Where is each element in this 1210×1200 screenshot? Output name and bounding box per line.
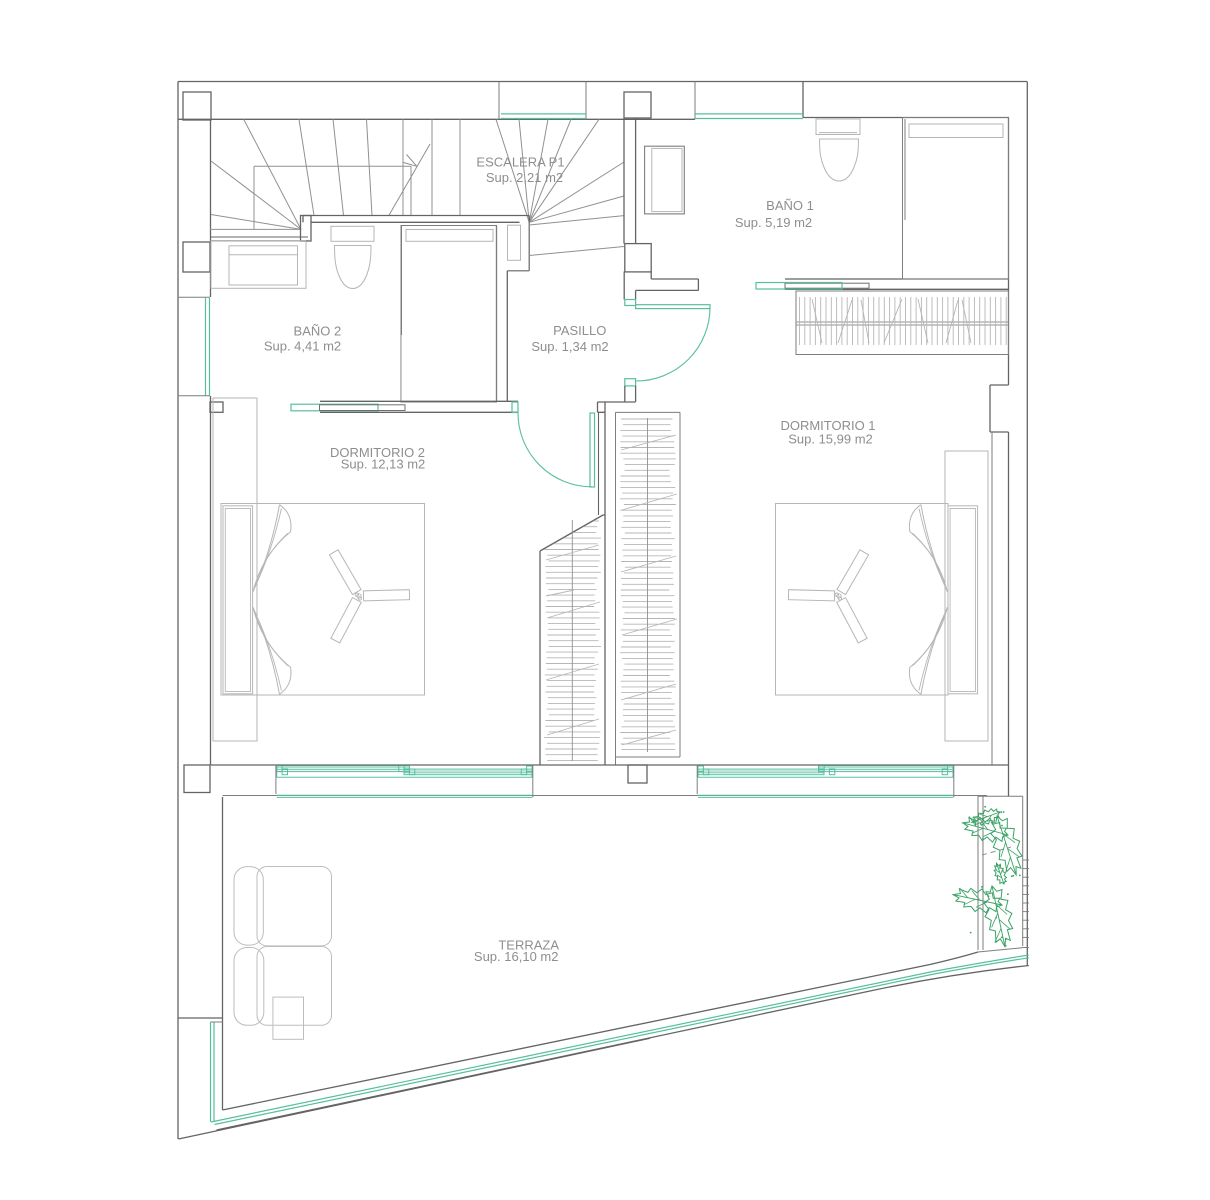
svg-text:PASILLO: PASILLO (553, 323, 606, 338)
svg-text:BAÑO 1: BAÑO 1 (766, 198, 814, 213)
svg-text:Sup. 4,41 m2: Sup. 4,41 m2 (264, 339, 341, 354)
svg-text:Sup. 16,10 m2: Sup. 16,10 m2 (474, 949, 559, 964)
svg-text:BAÑO 2: BAÑO 2 (294, 324, 342, 339)
svg-text:Sup. 15,99 m2: Sup. 15,99 m2 (788, 432, 873, 447)
svg-text:Sup. 1,34 m2: Sup. 1,34 m2 (531, 339, 608, 354)
svg-text:Sup. 12,13 m2: Sup. 12,13 m2 (341, 457, 426, 472)
svg-text:ESCALERA P1: ESCALERA P1 (476, 155, 564, 170)
svg-text:Sup. 2,21 m2: Sup. 2,21 m2 (486, 170, 563, 185)
svg-text:Sup. 5,19 m2: Sup. 5,19 m2 (735, 215, 812, 230)
